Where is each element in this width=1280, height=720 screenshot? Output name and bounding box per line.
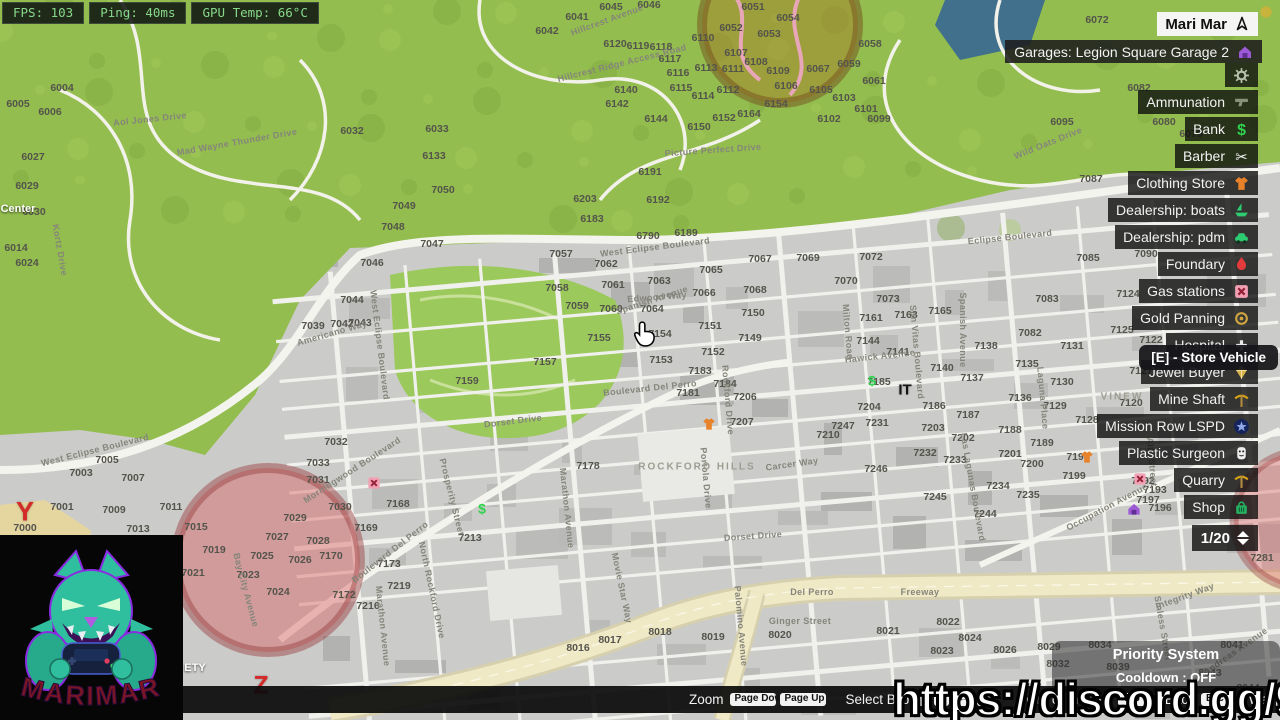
blip-menu-label: Gold Panning [1140,310,1225,326]
blip-menu-label: Shop [1192,499,1225,515]
blip-menu-item[interactable]: Ammunation [1138,90,1258,114]
pickaxe-icon [1235,476,1248,488]
blip-menu-item[interactable]: Gold Panning [1132,306,1258,330]
page-indicator: 1/20 [1201,530,1230,547]
blip-menu-label: Clothing Store [1136,175,1225,191]
flame-icon [1237,257,1246,270]
discord-watermark: https://discord.gg/9rjm2zwn [893,672,1280,720]
blip-menu-label: Bank [1193,121,1225,137]
store-vehicle-tooltip: [E] - Store Vehicle [1139,345,1278,370]
tattoo-icon [1234,68,1249,83]
scissors-icon [1235,148,1247,165]
marimar-logo: MARIMAR [0,535,183,720]
blip-menu-label: Plastic Surgeon [1127,445,1225,461]
blip-menu-pagination[interactable]: 1/20 [1192,525,1258,551]
blip-menu-item[interactable] [1225,63,1258,87]
tooltip-text: [E] - Store Vehicle [1151,350,1266,365]
hand-cursor [632,320,658,348]
blip-menu-item[interactable]: Mission Row LSPD [1097,414,1258,438]
blip-menu-item[interactable]: Barber [1175,144,1258,168]
world-map[interactable]: $ ✂ [0,0,1280,720]
pickaxe-icon [1235,395,1248,407]
blip-menu-label: Dealership: boats [1116,202,1225,218]
garage-banner: Garages: Legion Square Garage 2 [1005,40,1262,63]
fps-counter: FPS: 103 [2,2,84,24]
zone-circle-del-perro [176,468,360,652]
control-hint: Zoom Page DownPage Up [689,692,826,707]
blip-menu-item[interactable]: Dealership: boats [1108,198,1258,222]
priority-title: Priority System [1052,647,1280,663]
police-badge-icon [1234,419,1249,434]
blip-menu-item[interactable]: Dealership: pdm [1115,225,1258,249]
gun-icon [1235,98,1248,105]
key-page-up: Page Up [780,693,826,706]
page-up-down-icon[interactable] [1237,531,1249,545]
blip-menu-item[interactable]: Bank [1185,117,1258,141]
blip-menu-label: Barber [1183,148,1225,164]
blip-menu-label: Dealership: pdm [1123,229,1225,245]
car-icon [1235,233,1248,243]
gpu-temp: GPU Temp: 66°C [191,2,318,24]
blip-menu-label: Foundary [1166,256,1225,272]
control-keys: Page DownPage Up [730,693,826,706]
garage-banner-text: Garages: Legion Square Garage 2 [1014,44,1229,60]
blip-menu-item[interactable]: Mine Shaft [1150,387,1258,411]
blip-menu-item[interactable]: Clothing Store [1128,171,1258,195]
control-label: Zoom [689,692,724,707]
ping-counter: Ping: 40ms [89,2,186,24]
backlot-block [486,565,562,621]
blip-menu-item[interactable]: Gas stations [1139,279,1258,303]
blip-menu-item[interactable]: Quarry [1174,468,1258,492]
pump-x-icon [1235,285,1248,298]
blip-menu-item[interactable]: Foundary [1158,252,1258,276]
gold-pan-icon [1236,313,1247,324]
game-map-screen: $ ✂ [0,0,1280,720]
player-name: Mari Mar [1165,16,1227,33]
blip-menu-item[interactable]: Shop [1184,495,1258,519]
blip-menu-list: Ammunation Bank Barber Clothing Store [1097,63,1258,519]
wolf-mascot: MARIMAR [0,535,183,720]
blip-menu-label: Gas stations [1147,283,1225,299]
blip-filter-menu: Ammunation Bank Barber Clothing Store [1097,63,1258,551]
blip-menu-label: Mission Row LSPD [1105,418,1225,434]
garage-icon [1237,44,1253,60]
shirt-icon [1235,177,1248,190]
key-page-down: Page Down [730,693,776,706]
mask-icon [1237,447,1246,459]
dollar-icon [1237,121,1246,137]
blip-menu-item[interactable]: Plastic Surgeon [1119,441,1258,465]
blip-menu-label: Quarry [1182,472,1225,488]
player-name-box: Mari Mar [1157,12,1258,36]
shop-icon [1236,502,1247,514]
hud-stats: FPS: 103 Ping: 40ms GPU Temp: 66°C [2,2,319,24]
blip-menu-label: Mine Shaft [1158,391,1225,407]
blip-menu-label: Ammunation [1146,94,1225,110]
north-arrow-icon [1234,16,1250,32]
boat-icon [1235,203,1248,216]
rockford-hills-block [637,426,735,502]
